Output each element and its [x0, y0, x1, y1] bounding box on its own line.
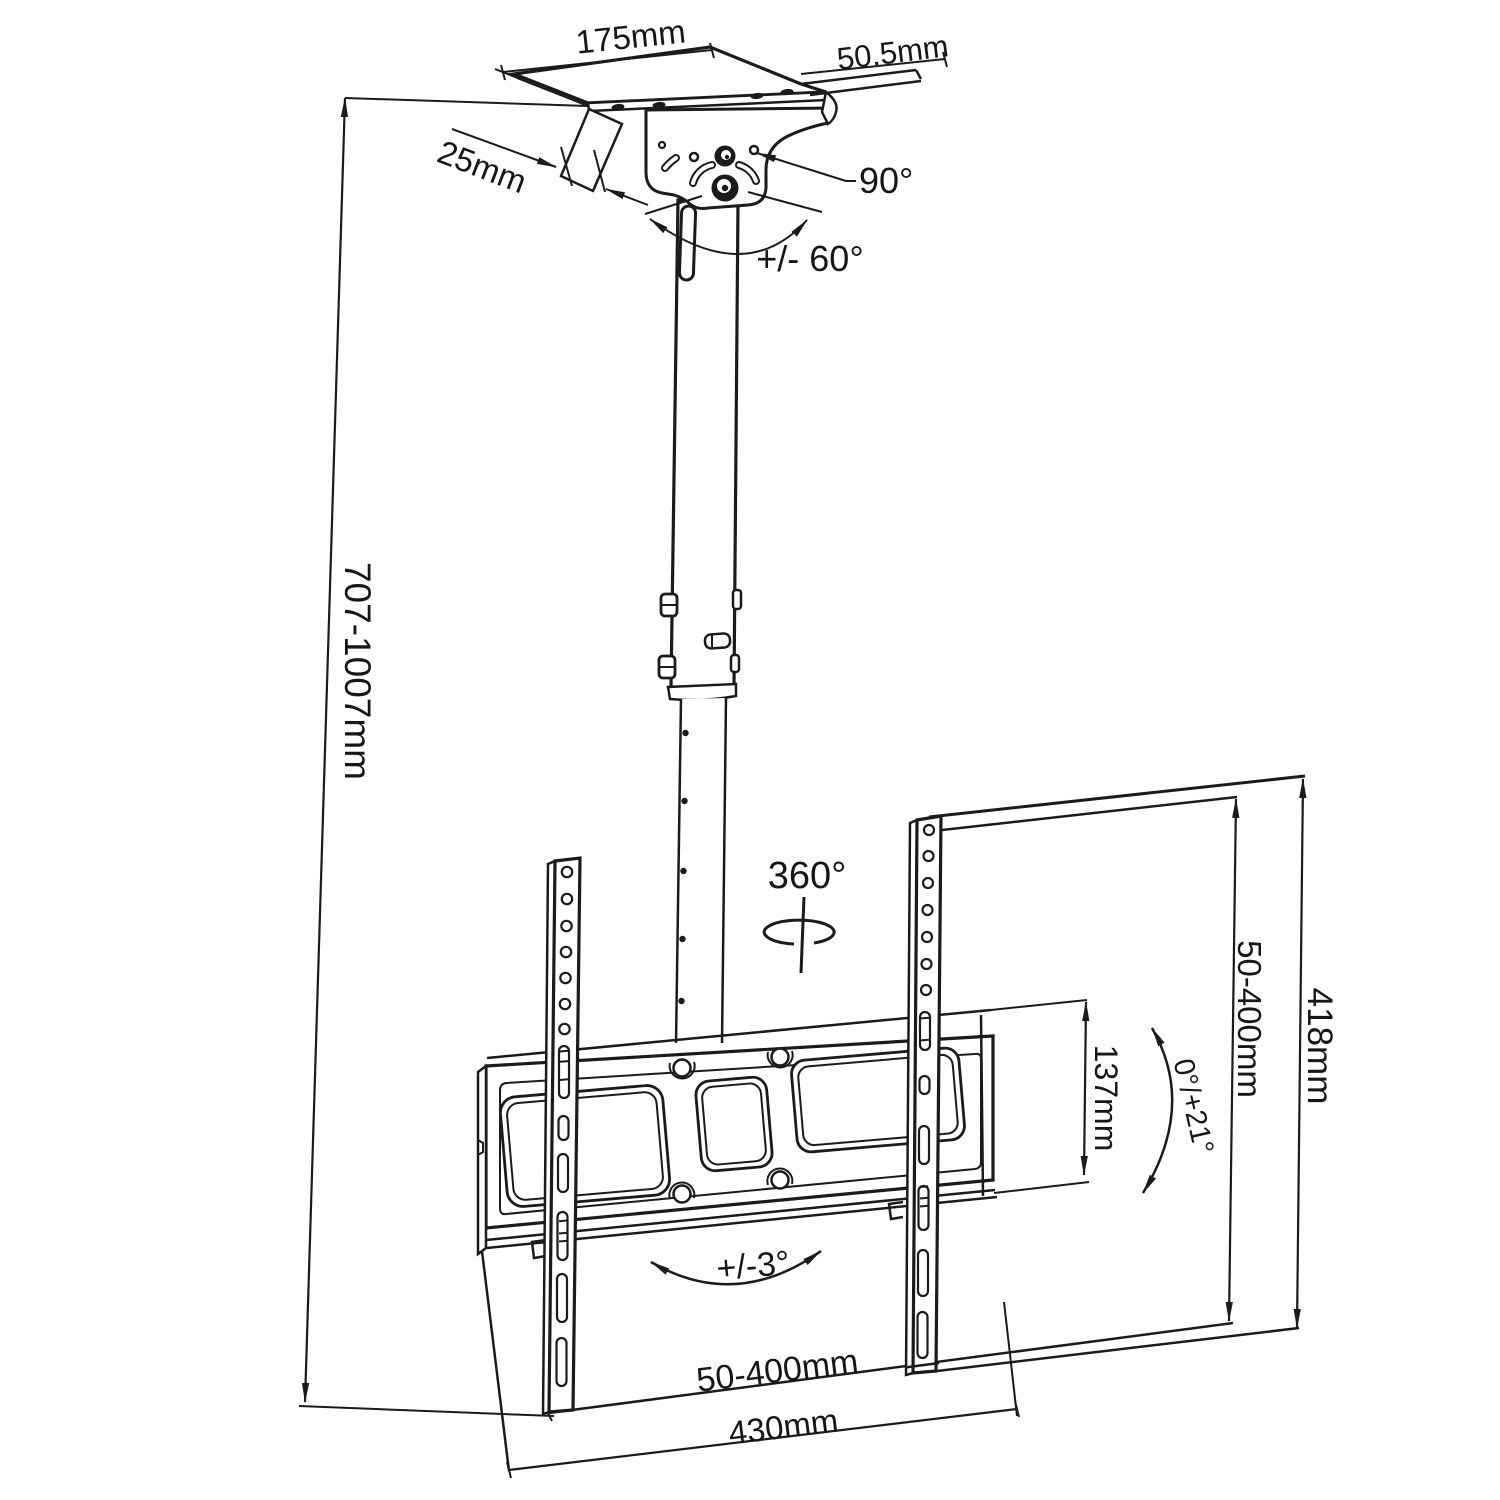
svg-text:418mm: 418mm [1300, 988, 1339, 1105]
svg-text:90°: 90° [859, 160, 913, 201]
svg-text:+/-3°: +/-3° [715, 1244, 791, 1288]
svg-text:+/- 60°: +/- 60° [756, 238, 863, 279]
svg-text:360°: 360° [768, 855, 847, 897]
svg-text:50-400mm: 50-400mm [1231, 940, 1268, 1098]
svg-text:137mm: 137mm [1088, 1045, 1124, 1152]
svg-text:707-1007mm: 707-1007mm [337, 562, 378, 780]
